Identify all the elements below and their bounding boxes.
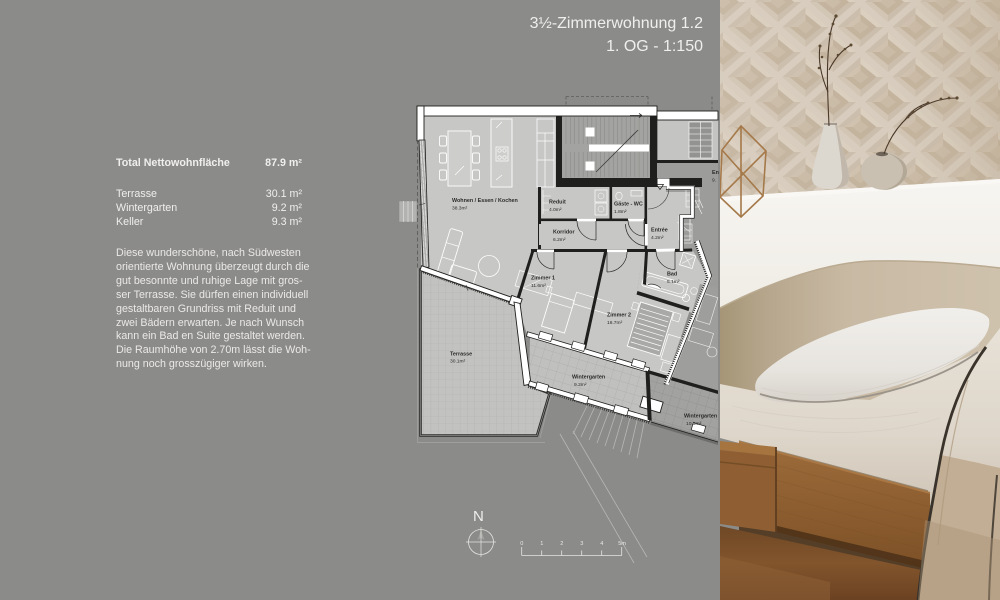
svg-text:En: En [712, 170, 719, 176]
svg-text:10.3m²: 10.3m² [686, 421, 702, 427]
svg-text:Wintergarten: Wintergarten [572, 375, 605, 381]
svg-text:N: N [473, 508, 484, 525]
svg-text:1.8m²: 1.8m² [614, 209, 627, 215]
svg-text:Korridor: Korridor [553, 230, 575, 236]
svg-text:Zimmer 2: Zimmer 2 [607, 313, 631, 319]
svg-text:4.2m²: 4.2m² [651, 235, 664, 241]
svg-text:2: 2 [560, 541, 563, 547]
svg-text:5m: 5m [618, 541, 626, 547]
svg-text:Terrasse: Terrasse [450, 352, 472, 358]
svg-text:30.1m²: 30.1m² [450, 359, 466, 365]
svg-text:4.0m²: 4.0m² [549, 207, 562, 213]
svg-text:16.7m²: 16.7m² [607, 320, 623, 326]
svg-text:0: 0 [520, 541, 523, 547]
svg-text:Bad: Bad [667, 272, 677, 278]
svg-text:Reduit: Reduit [549, 200, 566, 206]
svg-text:1: 1 [540, 541, 543, 547]
svg-text:3: 3 [580, 541, 583, 547]
svg-text:11.6m²: 11.6m² [531, 283, 546, 289]
svg-text:6.2m²: 6.2m² [553, 237, 566, 243]
svg-text:Entrée: Entrée [651, 228, 668, 234]
svg-text:Wintergarten: Wintergarten [684, 414, 717, 420]
svg-text:9.: 9. [712, 178, 716, 184]
svg-text:Wohnen / Essen / Kochen: Wohnen / Essen / Kochen [452, 198, 518, 204]
svg-text:4: 4 [600, 541, 603, 547]
svg-text:5.1m²: 5.1m² [667, 279, 680, 285]
svg-text:Gäste - WC: Gäste - WC [614, 202, 643, 208]
svg-text:38.3m²: 38.3m² [452, 206, 468, 212]
svg-text:Zimmer 1: Zimmer 1 [531, 276, 555, 282]
svg-text:9.2m²: 9.2m² [574, 382, 587, 388]
